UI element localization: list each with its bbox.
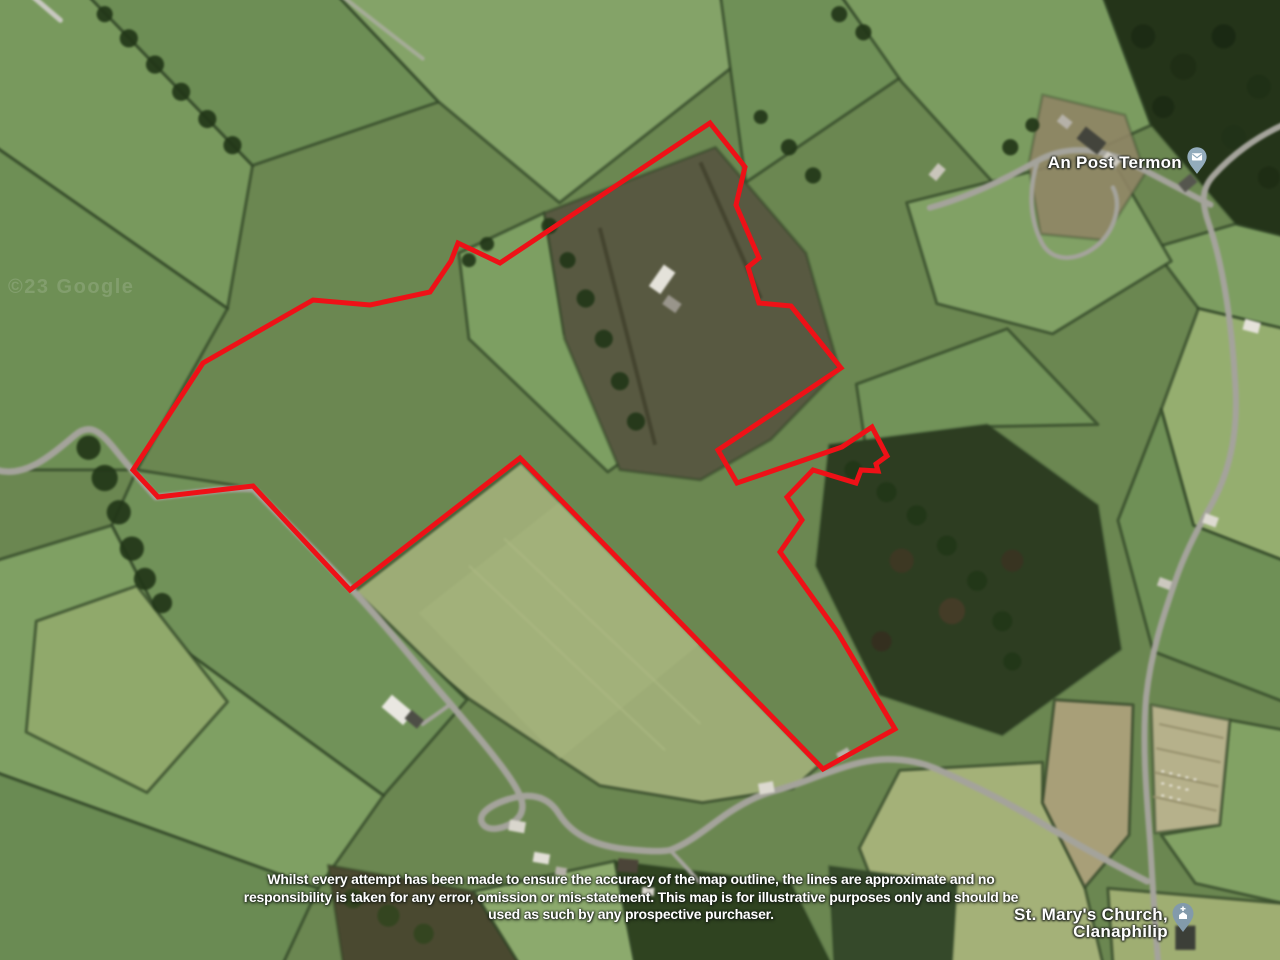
disclaimer-line-2: responsibility is taken for any error, o… (0, 889, 1262, 907)
boundary-polygon (133, 123, 895, 769)
buildings-layer (382, 114, 1261, 950)
post-office-pin-icon[interactable] (1186, 146, 1208, 176)
roads-layer (0, 0, 1280, 960)
disclaimer-line-3: used as such by any prospective purchase… (0, 906, 1262, 924)
church-label-line2: Clanaphilip (1014, 923, 1168, 940)
trees-layer (77, 6, 1280, 944)
post-office-label[interactable]: An Post Termon (1048, 153, 1182, 173)
property-boundary (133, 123, 895, 769)
satellite-imagery (0, 0, 1280, 960)
disclaimer-line-1: Whilst every attempt has been made to en… (0, 871, 1262, 889)
google-watermark: ©23 Google (8, 276, 134, 299)
satellite-property-map: ©23 Google An Post Termon St. Mary's Chu… (0, 0, 1280, 960)
disclaimer-text: Whilst every attempt has been made to en… (0, 871, 1262, 924)
property-boundary-layer (0, 0, 1280, 960)
fields-layer (0, 0, 1280, 960)
field-texture-layer (419, 162, 1224, 810)
